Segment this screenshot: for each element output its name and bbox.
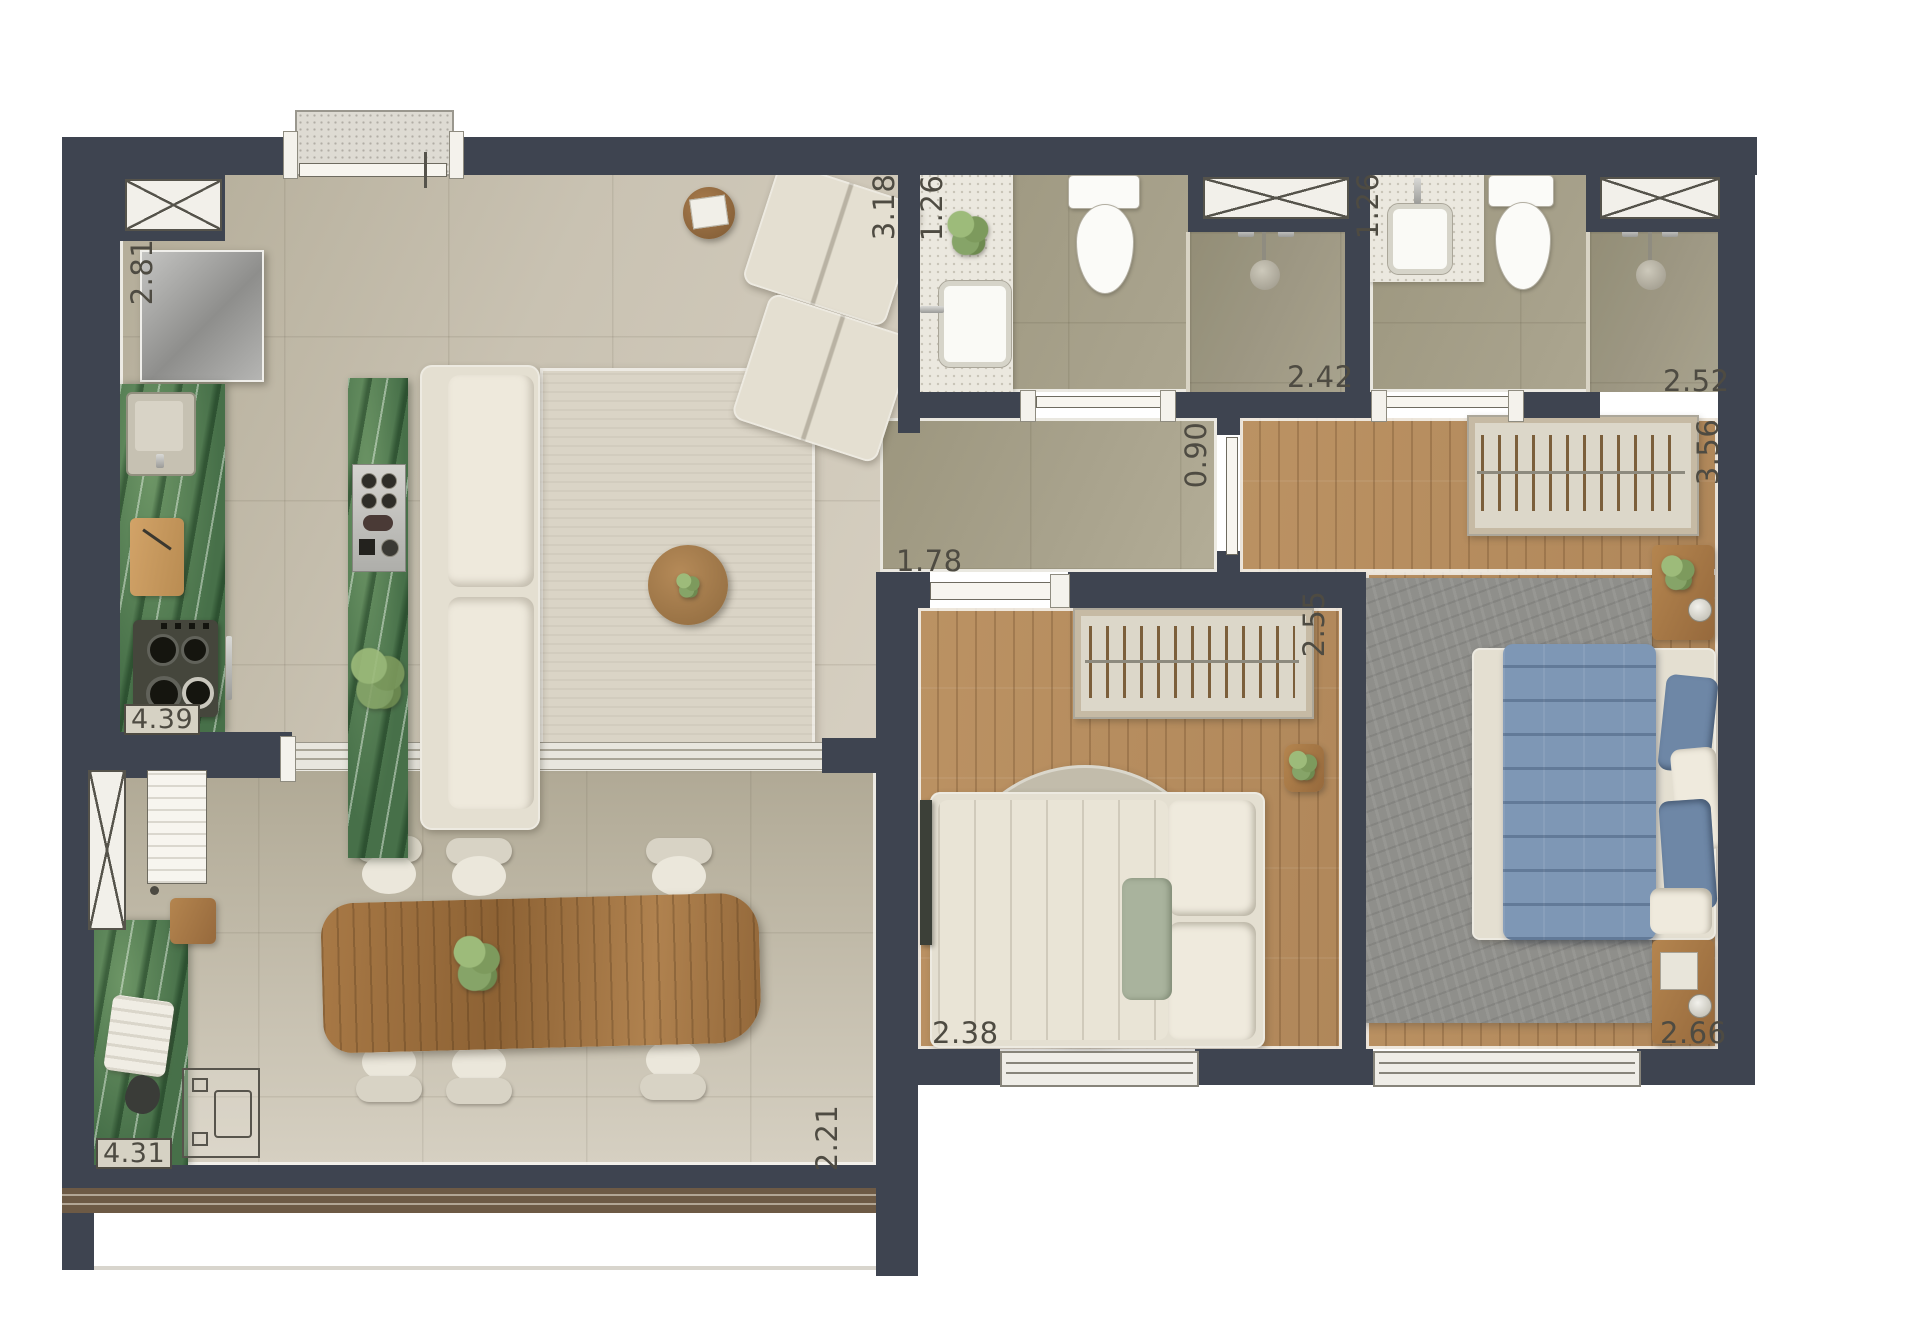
single-bed [930, 792, 1265, 1048]
dim-label-living-width: 3.18 [867, 174, 901, 241]
bathroom2-door-jamb [1508, 390, 1524, 422]
coffee-table-plant [674, 571, 702, 599]
wood-stool [170, 898, 216, 944]
entry-door-handle [424, 152, 437, 188]
shaft-xbox-left [88, 770, 126, 930]
bathroom1-door-jamb [1160, 390, 1176, 422]
dining-chair [640, 1040, 706, 1100]
master-window [1373, 1051, 1641, 1087]
washing-machine-outline [182, 1068, 260, 1158]
wall-left-upper [62, 137, 120, 765]
bathroom1-plant [944, 206, 992, 258]
dim-label-hall-length: 1.78 [896, 544, 963, 578]
bathroom1-shower-head [1250, 260, 1280, 290]
sofa [420, 365, 540, 830]
wall-bed2-west [876, 572, 918, 1276]
wall-bed2-master-divider [1342, 572, 1366, 1049]
nightstand-plant [1658, 552, 1698, 592]
wall-top-right [455, 137, 1757, 175]
dim-label-kitchen-depth: 2.81 [125, 239, 159, 306]
dim-label-bath1-width: 2.42 [1287, 360, 1354, 394]
dim-label-bath1-depth: 1.26 [915, 175, 949, 242]
shaft-xbox-bath2 [1600, 177, 1720, 219]
bedroom2-sliding-door-leaf [930, 582, 1054, 600]
wall-living-jog [822, 738, 878, 773]
dim-label-bed2-width: 2.38 [932, 1016, 999, 1050]
terrace-edge [94, 1266, 876, 1270]
dining-table [320, 892, 762, 1053]
dim-label-hall-width: 0.90 [1179, 422, 1213, 489]
dim-label-master-width: 2.66 [1660, 1016, 1727, 1050]
bathroom1-shower-partition [1186, 232, 1190, 392]
island-flowers [348, 640, 408, 714]
sage-cushion [1122, 878, 1172, 1000]
shaft-xbox-kitchen [125, 179, 222, 231]
master-door-leaf [1226, 437, 1238, 555]
bathroom2-faucet [1414, 178, 1421, 204]
bathroom2-door-leaf [1385, 396, 1511, 408]
table-lamp [1688, 994, 1712, 1018]
dim-label-bed2-depth: 2.55 [1297, 591, 1331, 658]
dim-label-master-depth: 3.56 [1691, 419, 1725, 486]
dining-chair [446, 838, 512, 896]
wall-top-left [62, 137, 290, 175]
dining-chair [646, 838, 712, 896]
bathroom1-door-jamb [1020, 390, 1036, 422]
sofa-cushion [448, 375, 534, 587]
appliance-button [359, 539, 375, 555]
pillow [1168, 800, 1256, 916]
bathroom2-shower-head [1636, 260, 1666, 290]
island-appliance-panel [352, 464, 406, 572]
cooktop-stove [133, 620, 218, 717]
shaft-xbox-bath1 [1203, 177, 1349, 219]
wall-balcony-sill [94, 1165, 876, 1188]
master-wardrobe [1467, 415, 1699, 536]
dim-label-bath2-width: 2.52 [1663, 364, 1730, 398]
floorplan-canvas: 2.81 3.18 1.26 2.42 1.26 2.52 0.90 1.78 … [0, 0, 1920, 1344]
cutting-board [130, 518, 184, 596]
wall-bath-bottom-c [1520, 392, 1600, 418]
service-door-leaf [147, 770, 207, 884]
bedroom2-window [1000, 1051, 1199, 1087]
bedroom2-tv-panel [920, 800, 932, 945]
burner [181, 636, 209, 664]
balcony-slider-jamb [280, 736, 296, 782]
dining-chair [446, 1044, 512, 1104]
wall-right [1718, 137, 1755, 1085]
bathroom2-door-jamb [1371, 390, 1387, 422]
dim-label-bath2-depth: 1.26 [1351, 173, 1385, 240]
sofa-cushion [448, 597, 534, 809]
side-table-tray [689, 195, 729, 230]
burner [147, 634, 179, 666]
kitchen-island [348, 378, 408, 858]
double-bed [1472, 648, 1716, 940]
pillow [1650, 888, 1712, 934]
bathroom2-shower-partition [1586, 232, 1590, 392]
appliance-display [363, 515, 393, 531]
dining-table-plant [452, 928, 502, 996]
entry-door-jamb [283, 131, 298, 179]
bathroom1-faucet [920, 306, 944, 313]
wall-master-door-stub-top [1217, 418, 1240, 435]
knife-icon [142, 529, 172, 551]
wall-bath-bottom-a [918, 392, 1032, 418]
nightstand-tray [1660, 952, 1698, 990]
bedroom2-door-jamb [1050, 574, 1070, 608]
wall-bed-bottom-b [1195, 1049, 1373, 1085]
bathroom2-basin [1387, 203, 1453, 275]
oven-handle [226, 636, 232, 700]
stove-knobs [161, 623, 211, 629]
folded-towel [103, 994, 175, 1078]
kitchen-sink-basin [135, 401, 183, 451]
kitchen-faucet [156, 454, 164, 468]
bedroom2-wardrobe [1073, 608, 1314, 719]
bathroom1-door-leaf [1036, 396, 1164, 408]
wall-bed-bottom-a [876, 1049, 1000, 1085]
balcony-glass-door-track [62, 1188, 876, 1213]
blue-quilt [1503, 644, 1656, 940]
wall-lamp [1688, 598, 1712, 622]
kitchen-sink [126, 392, 196, 476]
dim-label-balcony-run: 4.31 [96, 1138, 172, 1169]
dim-label-balcony-depth: 2.21 [810, 1105, 844, 1172]
service-door-handle [150, 886, 159, 895]
entry-door-jamb [449, 131, 464, 179]
pillow [1168, 922, 1256, 1040]
dim-label-kitchen-run: 4.39 [124, 704, 200, 735]
bathroom1-basin [938, 280, 1012, 368]
wall-bed-bottom-c [1637, 1049, 1718, 1085]
bedroom2-plant [1286, 748, 1320, 782]
